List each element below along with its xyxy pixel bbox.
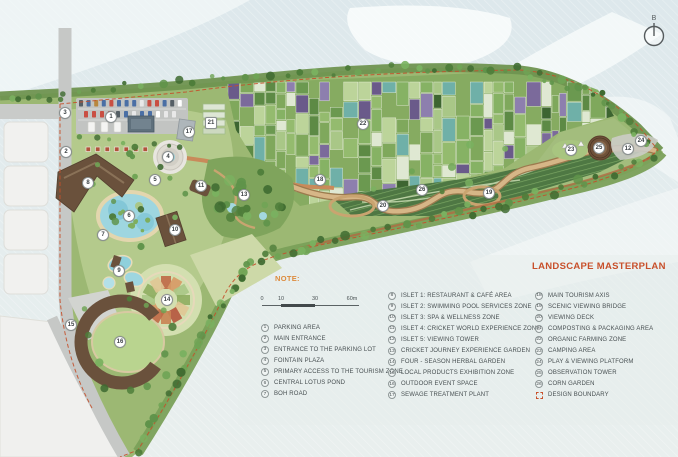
map-marker-10[interactable]: 10	[169, 224, 181, 236]
map-marker-20[interactable]: 20	[377, 200, 389, 212]
map-marker-21[interactable]: 21	[205, 117, 217, 129]
map-marker-16[interactable]: 16	[114, 336, 126, 348]
map-marker-22[interactable]: 22	[357, 118, 369, 130]
map-marker-15[interactable]: 15	[65, 319, 77, 331]
map-marker-3[interactable]: 3	[59, 107, 71, 119]
map-marker-8[interactable]: 8	[82, 177, 94, 189]
map-marker-7[interactable]: 7	[97, 229, 109, 241]
masterplan-canvas: 1234567891011121314151617181920212223242…	[0, 0, 678, 457]
map-marker-17[interactable]: 17	[183, 126, 195, 138]
map-marker-23[interactable]: 23	[565, 144, 577, 156]
map-marker-18[interactable]: 18	[314, 174, 326, 186]
map-marker-11[interactable]: 11	[195, 180, 207, 192]
entrance-pergolas	[86, 147, 148, 152]
map-marker-13[interactable]: 13	[238, 189, 250, 201]
map-marker-25[interactable]: 25	[593, 142, 605, 154]
map-marker-1[interactable]: 1	[105, 111, 117, 123]
map-marker-26[interactable]: 26	[416, 184, 428, 196]
map-marker-14[interactable]: 14	[161, 294, 173, 306]
service-building-roof	[131, 119, 151, 129]
map-marker-19[interactable]: 19	[483, 187, 495, 199]
map-marker-6[interactable]: 6	[123, 210, 135, 222]
map-marker-4[interactable]: 4	[162, 151, 174, 163]
map-marker-9[interactable]: 9	[113, 265, 125, 277]
map-marker-2[interactable]: 2	[60, 146, 72, 158]
map-marker-5[interactable]: 5	[149, 174, 161, 186]
map-marker-12[interactable]: 12	[622, 143, 634, 155]
map-marker-24[interactable]: 24	[635, 135, 647, 147]
